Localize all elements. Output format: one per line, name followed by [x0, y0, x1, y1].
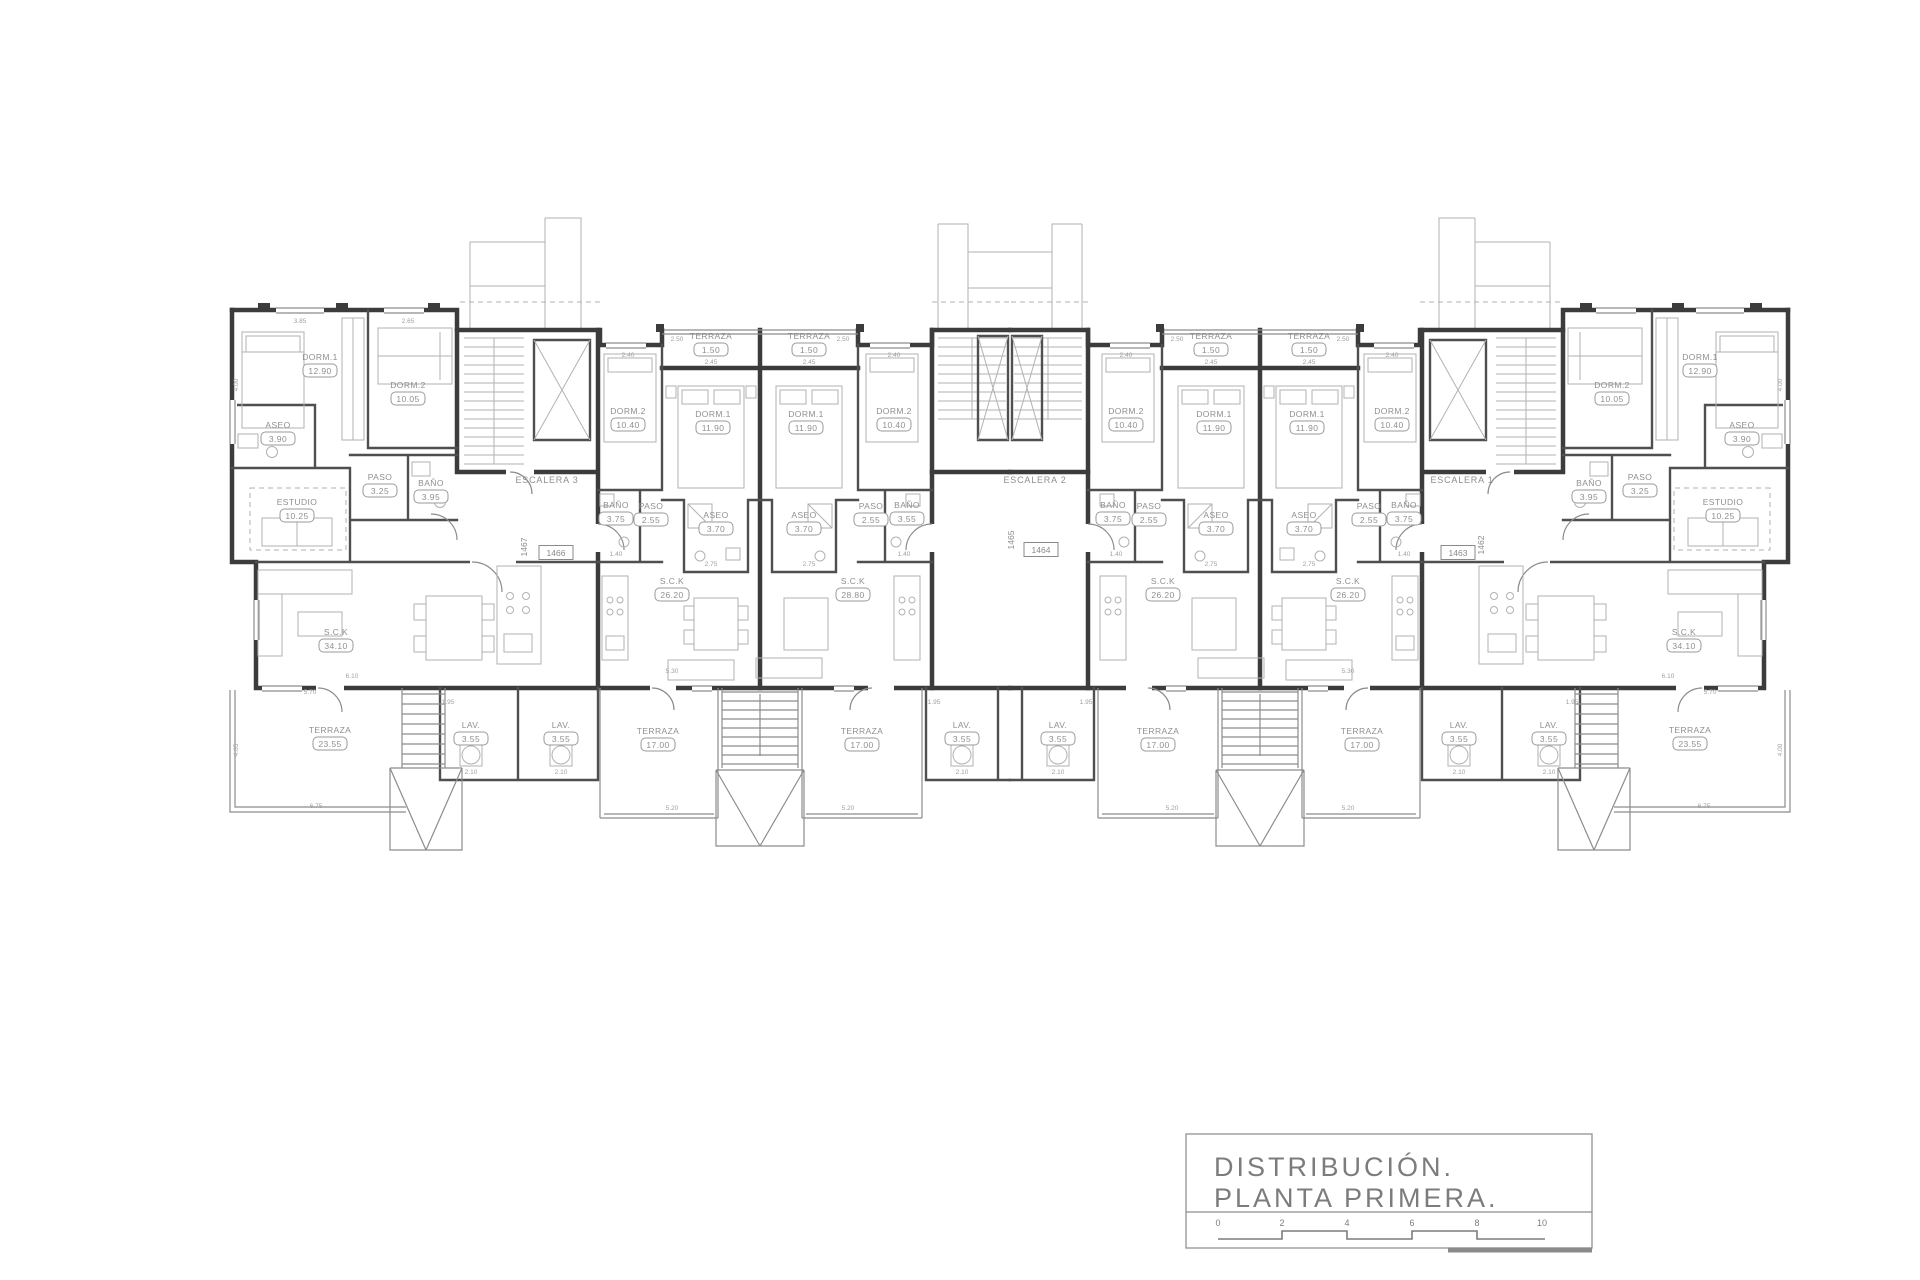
- dimension-label: 2.50: [1171, 336, 1184, 343]
- room-area: 17.00: [850, 740, 873, 750]
- unit-number-tag: 1464: [1024, 543, 1058, 557]
- room-label-dorm2: DORM.210.05: [390, 380, 425, 405]
- unit-number-tag: 1467: [519, 537, 529, 556]
- room-area: 12.90: [1688, 366, 1711, 376]
- room-label-dorm1: DORM.112.90: [1682, 352, 1717, 377]
- room-name: DORM.2: [1594, 380, 1629, 390]
- room-label-sck: S.C.K34.10: [1667, 627, 1701, 652]
- room-label-terraza: TERRAZA1.50: [788, 331, 830, 356]
- dimension-label: 4.00: [1777, 378, 1784, 391]
- dimension-text: 6.10: [346, 673, 359, 680]
- dimension-text: 5.20: [666, 805, 679, 812]
- dimension-text: 5.20: [1166, 805, 1179, 812]
- room-label-aseo: ASEO3.70: [1287, 510, 1321, 535]
- unit-number: 1467: [519, 537, 529, 556]
- dimension-text: 1.40: [610, 551, 623, 558]
- room-name: TERRAZA: [309, 725, 351, 735]
- room-name: ESTUDIO: [1703, 497, 1744, 507]
- dimension-label: 1.95: [1566, 699, 1579, 706]
- dimension-text: 6.75: [1698, 803, 1711, 810]
- room-label-terraza: TERRAZA23.55: [1669, 725, 1711, 750]
- dimension-text: 6.10: [1662, 673, 1675, 680]
- dimension-label: 2.40: [888, 352, 901, 359]
- dimension-label: 2.40: [1120, 352, 1133, 359]
- room-area: 3.55: [1540, 734, 1558, 744]
- dimension-text: 2.65: [402, 318, 415, 325]
- dimension-text: 2.10: [1052, 769, 1065, 776]
- room-label-dorm2: DORM.210.05: [1594, 380, 1629, 405]
- dimension-text: 2.50: [837, 336, 850, 343]
- stair-core-protrusions: [460, 218, 1010, 330]
- building-left-half: [227, 218, 1010, 850]
- dimension-text: 2.75: [1205, 561, 1218, 568]
- room-label-dorm1: DORM.111.90: [1196, 409, 1231, 434]
- room-area: 3.25: [1631, 486, 1649, 496]
- dimension-label: 2.75: [705, 561, 718, 568]
- dimension-text: 5.70: [304, 689, 317, 696]
- room-area: 10.25: [1711, 511, 1734, 521]
- dimension-text: 5.30: [666, 668, 679, 675]
- room-name: DORM.2: [1374, 406, 1409, 416]
- dimension-label: 5.20: [1342, 805, 1355, 812]
- room-name: S.C.K: [1672, 627, 1696, 637]
- room-label-paso: PASO3.25: [363, 472, 397, 497]
- room-name: S.C.K: [1151, 576, 1175, 586]
- dimension-label: 5.70: [1704, 689, 1717, 696]
- room-name: LAV.: [462, 720, 481, 730]
- room-area: 17.00: [1350, 740, 1373, 750]
- room-area: 10.40: [616, 420, 639, 430]
- room-label-bao: BAÑO3.75: [1096, 500, 1130, 525]
- room-name: LAV.: [1540, 720, 1559, 730]
- dimension-text: 2.10: [555, 769, 568, 776]
- room-label-dorm1: DORM.112.90: [302, 352, 337, 377]
- building-right-half: [1010, 218, 1793, 850]
- dimension-text: 1.40: [898, 551, 911, 558]
- unit-number-tag: 1463: [1441, 546, 1475, 560]
- dimension-label: 2.40: [1386, 352, 1399, 359]
- room-area: 11.90: [1296, 423, 1319, 433]
- dimension-text: 2.45: [1303, 359, 1316, 366]
- dimension-text: 3.85: [294, 318, 307, 325]
- room-area: 3.95: [1580, 492, 1598, 502]
- dimension-text: 2.45: [803, 359, 816, 366]
- room-name: DORM.1: [695, 409, 730, 419]
- unit-number-tag: 1465: [1006, 530, 1016, 549]
- dimension-label: 4.00: [233, 378, 240, 391]
- room-label-aseo: ASEO3.90: [261, 420, 295, 445]
- room-area: 17.00: [646, 740, 669, 750]
- room-name: ASEO: [791, 510, 816, 520]
- room-area: 11.90: [702, 423, 725, 433]
- dimension-text: 2.75: [803, 561, 816, 568]
- room-label-sck: S.C.K26.20: [1146, 576, 1180, 601]
- scale-tick-10: 10: [1537, 1218, 1547, 1228]
- room-area: 3.95: [422, 492, 440, 502]
- room-area: 3.55: [898, 514, 916, 524]
- dimension-label: 5.70: [304, 689, 317, 696]
- dimension-label: 2.45: [1205, 359, 1218, 366]
- dimension-label: 5.20: [666, 805, 679, 812]
- room-area: 26.20: [1151, 590, 1174, 600]
- room-area: 26.20: [1336, 590, 1359, 600]
- dimension-label: 2.10: [1453, 769, 1466, 776]
- unit-number: 1463: [1449, 548, 1468, 558]
- room-area: 2.55: [642, 515, 660, 525]
- unit-number: 1465: [1006, 530, 1016, 549]
- room-area: 10.05: [396, 394, 419, 404]
- room-area: 3.90: [1733, 434, 1751, 444]
- dimension-label: 5.20: [1166, 805, 1179, 812]
- dimension-label: 2.65: [402, 318, 415, 325]
- room-name: DORM.1: [1682, 352, 1717, 362]
- dimension-text: 2.75: [705, 561, 718, 568]
- room-area: 10.40: [1380, 420, 1403, 430]
- room-name: ESTUDIO: [277, 497, 318, 507]
- floor-plan-page: DORM.112.90DORM.210.05ASEO3.90PASO3.25BA…: [0, 0, 1920, 1280]
- room-name: PASO: [859, 501, 884, 511]
- room-label-sck: S.C.K28.80: [836, 576, 870, 601]
- room-name: BAÑO: [894, 500, 920, 510]
- room-name: LAV.: [953, 720, 972, 730]
- room-name: DORM.1: [302, 352, 337, 362]
- room-label-dorm2: DORM.210.40: [610, 406, 645, 431]
- room-name: ASEO: [1291, 510, 1316, 520]
- dimension-label: 1.40: [1398, 551, 1411, 558]
- room-name: TERRAZA: [1341, 726, 1383, 736]
- room-area: 1.50: [702, 345, 720, 355]
- room-area: 10.40: [1114, 420, 1137, 430]
- room-label-estudio: ESTUDIO10.25: [277, 497, 318, 522]
- dimension-label: 2.45: [1303, 359, 1316, 366]
- dimension-text: 2.50: [1337, 336, 1350, 343]
- dimension-label: 1.40: [1110, 551, 1123, 558]
- room-name: LAV.: [1450, 720, 1469, 730]
- room-name: PASO: [368, 472, 393, 482]
- scale-tick-4: 4: [1344, 1218, 1349, 1228]
- room-area: 34.10: [1672, 641, 1695, 651]
- room-label-bao: BAÑO3.55: [890, 500, 924, 525]
- room-area: 11.90: [795, 423, 818, 433]
- room-label-aseo: ASEO3.70: [1199, 510, 1233, 535]
- room-name: LAV.: [1049, 720, 1068, 730]
- dimension-text: 6.75: [310, 803, 323, 810]
- stairwell-label: ESCALERA 2: [1003, 475, 1066, 485]
- room-area: 23.55: [1678, 739, 1701, 749]
- dimension-text: 4.05: [233, 743, 240, 756]
- furniture: [238, 318, 973, 766]
- room-area: 3.25: [371, 486, 389, 496]
- room-area: 1.50: [800, 345, 818, 355]
- room-label-terraza: TERRAZA17.00: [1341, 726, 1383, 751]
- room-label-aseo: ASEO3.90: [1725, 420, 1759, 445]
- room-name: DORM.1: [1196, 409, 1231, 419]
- room-area: 23.55: [318, 739, 341, 749]
- room-name: BAÑO: [1391, 500, 1417, 510]
- room-name: TERRAZA: [637, 726, 679, 736]
- room-area: 26.20: [660, 590, 683, 600]
- room-name: PASO: [1357, 501, 1382, 511]
- room-area: 3.70: [707, 524, 725, 534]
- dimension-text: 1.95: [442, 699, 455, 706]
- room-area: 3.75: [1395, 514, 1413, 524]
- room-label-sck: S.C.K26.20: [1331, 576, 1365, 601]
- dimension-text: 1.40: [1398, 551, 1411, 558]
- room-name: DORM.1: [1289, 409, 1324, 419]
- room-label-aseo: ASEO3.70: [699, 510, 733, 535]
- room-label-estudio: ESTUDIO10.25: [1703, 497, 1744, 522]
- dimension-label: 4.05: [233, 743, 240, 756]
- room-name: TERRAZA: [1669, 725, 1711, 735]
- room-area: 3.70: [1207, 524, 1225, 534]
- walls-partitions: [232, 310, 1010, 780]
- room-label-lav: LAV.3.55: [1442, 720, 1476, 745]
- dimension-text: 4.00: [1777, 743, 1784, 756]
- room-label-bao: BAÑO3.75: [1387, 500, 1421, 525]
- unit-number: 1466: [547, 548, 566, 558]
- room-name: TERRAZA: [1288, 331, 1330, 341]
- room-area: 3.70: [1295, 524, 1313, 534]
- room-label-aseo: ASEO3.70: [787, 510, 821, 535]
- room-area: 2.55: [862, 515, 880, 525]
- room-name: DORM.2: [876, 406, 911, 416]
- dimension-label: 2.50: [1337, 336, 1350, 343]
- walls-structural: [232, 310, 1010, 688]
- room-area: 34.10: [324, 641, 347, 651]
- room-area: 3.55: [1450, 734, 1468, 744]
- stairwell-label: ESCALERA 3: [515, 475, 578, 485]
- room-name: PASO: [1137, 501, 1162, 511]
- dimension-label: 2.40: [622, 352, 635, 359]
- dimension-label: 2.75: [1303, 561, 1316, 568]
- dimension-label: 3.85: [294, 318, 307, 325]
- dimension-text: 1.40: [1110, 551, 1123, 558]
- room-label-bao: BAÑO3.95: [414, 478, 448, 503]
- room-label-lav: LAV.3.55: [1041, 720, 1075, 745]
- room-name: TERRAZA: [841, 726, 883, 736]
- dimension-label: 2.10: [956, 769, 969, 776]
- room-name: BAÑO: [418, 478, 444, 488]
- dimension-text: 2.45: [705, 359, 718, 366]
- room-label-terraza: TERRAZA17.00: [841, 726, 883, 751]
- room-name: S.C.K: [841, 576, 865, 586]
- room-label-lav: LAV.3.55: [454, 720, 488, 745]
- room-label-lav: LAV.3.55: [945, 720, 979, 745]
- room-label-terraza: TERRAZA1.50: [1288, 331, 1330, 356]
- unit-number: 1462: [1476, 535, 1486, 554]
- room-name: DORM.2: [610, 406, 645, 416]
- title-block: DISTRIBUCIÓN. PLANTA PRIMERA. 0 2 4 6 8 …: [1186, 1134, 1592, 1250]
- dimension-label: 1.95: [928, 699, 941, 706]
- dimension-label: 6.75: [310, 803, 323, 810]
- dimension-text: 2.40: [622, 352, 635, 359]
- dimension-label: 1.40: [610, 551, 623, 558]
- dimension-text: 2.45: [1205, 359, 1218, 366]
- room-label-paso: PASO2.55: [1132, 501, 1166, 526]
- dimension-text: 1.95: [1566, 699, 1579, 706]
- dimension-text: 4.00: [233, 378, 240, 391]
- dimension-label: 2.75: [1205, 561, 1218, 568]
- room-name: ASEO: [1203, 510, 1228, 520]
- unit-number-tag: 1462: [1476, 535, 1486, 554]
- room-name: TERRAZA: [788, 331, 830, 341]
- room-label-dorm1: DORM.111.90: [695, 409, 730, 434]
- room-area: 12.90: [308, 366, 331, 376]
- unit-number-tag: 1466: [539, 546, 573, 560]
- dimension-label: 6.75: [1698, 803, 1711, 810]
- room-name: ASEO: [265, 420, 290, 430]
- room-label-paso: PASO2.55: [854, 501, 888, 526]
- dimension-text: 5.30: [1342, 668, 1355, 675]
- room-label-sck: S.C.K34.10: [319, 627, 353, 652]
- room-label-paso: PASO3.25: [1623, 472, 1657, 497]
- dimension-label: 4.00: [1777, 743, 1784, 756]
- room-area: 1.50: [1202, 345, 1220, 355]
- room-label-terraza: TERRAZA23.55: [309, 725, 351, 750]
- room-area: 3.55: [953, 734, 971, 744]
- room-area: 10.05: [1600, 394, 1623, 404]
- room-label-dorm2: DORM.210.40: [1108, 406, 1143, 431]
- dimension-text: 2.10: [465, 769, 478, 776]
- room-area: 3.55: [552, 734, 570, 744]
- room-area: 28.80: [841, 590, 864, 600]
- room-name: BAÑO: [603, 500, 629, 510]
- dimension-text: 5.20: [1342, 805, 1355, 812]
- dimension-text: 5.20: [842, 805, 855, 812]
- drawing-subtitle: PLANTA PRIMERA.: [1214, 1183, 1499, 1213]
- dimension-text: 4.00: [1777, 378, 1784, 391]
- room-name: BAÑO: [1576, 478, 1602, 488]
- dimension-label: 2.45: [803, 359, 816, 366]
- dimension-text: 5.70: [1704, 689, 1717, 696]
- dimension-label: 5.30: [1342, 668, 1355, 675]
- dimension-text: 1.95: [928, 699, 941, 706]
- room-label-paso: PASO2.55: [634, 501, 668, 526]
- room-area: 10.25: [285, 511, 308, 521]
- drawing-title: DISTRIBUCIÓN.: [1214, 1151, 1454, 1182]
- dimension-label: 2.10: [555, 769, 568, 776]
- dimension-text: 2.40: [1120, 352, 1133, 359]
- room-area: 3.90: [269, 434, 287, 444]
- room-area: 3.70: [795, 524, 813, 534]
- stair-core-interior: [464, 336, 1008, 464]
- room-name: TERRAZA: [1190, 331, 1232, 341]
- room-area: 11.90: [1203, 423, 1226, 433]
- scale-tick-6: 6: [1409, 1218, 1414, 1228]
- dimension-label: 5.30: [666, 668, 679, 675]
- dimension-text: 2.50: [1171, 336, 1184, 343]
- room-name: S.C.K: [660, 576, 684, 586]
- room-label-dorm2: DORM.210.40: [876, 406, 911, 431]
- dimension-text: 2.10: [956, 769, 969, 776]
- room-label-sck: S.C.K26.20: [655, 576, 689, 601]
- scale-tick-0: 0: [1215, 1218, 1220, 1228]
- room-label-lav: LAV.3.55: [1532, 720, 1566, 745]
- room-label-bao: BAÑO3.75: [599, 500, 633, 525]
- room-area: 10.40: [882, 420, 905, 430]
- room-area: 3.55: [462, 734, 480, 744]
- room-name: S.C.K: [324, 627, 348, 637]
- room-name: TERRAZA: [1137, 726, 1179, 736]
- room-label-terraza: TERRAZA1.50: [1190, 331, 1232, 356]
- room-name: ASEO: [703, 510, 728, 520]
- stairwell-label: ESCALERA 1: [1430, 475, 1493, 485]
- room-name: DORM.1: [788, 409, 823, 419]
- room-label-dorm1: DORM.111.90: [1289, 409, 1324, 434]
- room-name: PASO: [639, 501, 664, 511]
- room-area: 3.55: [1049, 734, 1067, 744]
- dimension-label: 2.50: [671, 336, 684, 343]
- scale-tick-2: 2: [1279, 1218, 1284, 1228]
- dimension-label: 1.95: [442, 699, 455, 706]
- room-name: BAÑO: [1100, 500, 1126, 510]
- dimension-label: 2.75: [803, 561, 816, 568]
- floor-plan-drawing: DORM.112.90DORM.210.05ASEO3.90PASO3.25BA…: [0, 0, 1920, 1280]
- room-name: DORM.2: [1108, 406, 1143, 416]
- room-label-terraza: TERRAZA17.00: [1137, 726, 1179, 751]
- dimension-text: 2.10: [1453, 769, 1466, 776]
- dimension-label: 2.45: [705, 359, 718, 366]
- dimension-text: 2.40: [1386, 352, 1399, 359]
- room-label-bao: BAÑO3.95: [1572, 478, 1606, 503]
- dimension-label: 1.95: [1080, 699, 1093, 706]
- room-label-dorm1: DORM.111.90: [788, 409, 823, 434]
- room-name: DORM.2: [390, 380, 425, 390]
- dimension-text: 2.10: [1543, 769, 1556, 776]
- room-name: ASEO: [1729, 420, 1754, 430]
- dimension-text: 2.40: [888, 352, 901, 359]
- dimension-label: 1.40: [898, 551, 911, 558]
- dimension-label: 2.50: [837, 336, 850, 343]
- terraces-and-ext-stairs: [230, 330, 922, 850]
- room-label-terraza: TERRAZA1.50: [690, 331, 732, 356]
- room-area: 1.50: [1300, 345, 1318, 355]
- dimension-label: 5.20: [842, 805, 855, 812]
- dimension-label: 2.10: [465, 769, 478, 776]
- room-name: S.C.K: [1336, 576, 1360, 586]
- room-label-dorm2: DORM.210.40: [1374, 406, 1409, 431]
- room-label-paso: PASO2.55: [1352, 501, 1386, 526]
- dimension-label: 6.10: [1662, 673, 1675, 680]
- dimension-text: 2.50: [671, 336, 684, 343]
- room-area: 17.00: [1146, 740, 1169, 750]
- room-area: 2.55: [1360, 515, 1378, 525]
- dimension-label: 2.10: [1052, 769, 1065, 776]
- dimension-label: 6.10: [346, 673, 359, 680]
- room-name: PASO: [1628, 472, 1653, 482]
- dimension-label: 2.10: [1543, 769, 1556, 776]
- room-name: LAV.: [552, 720, 571, 730]
- room-label-terraza: TERRAZA17.00: [637, 726, 679, 751]
- unit-number: 1464: [1032, 545, 1051, 555]
- scale-tick-8: 8: [1474, 1218, 1479, 1228]
- room-name: TERRAZA: [690, 331, 732, 341]
- room-label-lav: LAV.3.55: [544, 720, 578, 745]
- room-area: 3.75: [1104, 514, 1122, 524]
- room-area: 2.55: [1140, 515, 1158, 525]
- dimension-text: 1.95: [1080, 699, 1093, 706]
- dimension-text: 2.75: [1303, 561, 1316, 568]
- room-area: 3.75: [607, 514, 625, 524]
